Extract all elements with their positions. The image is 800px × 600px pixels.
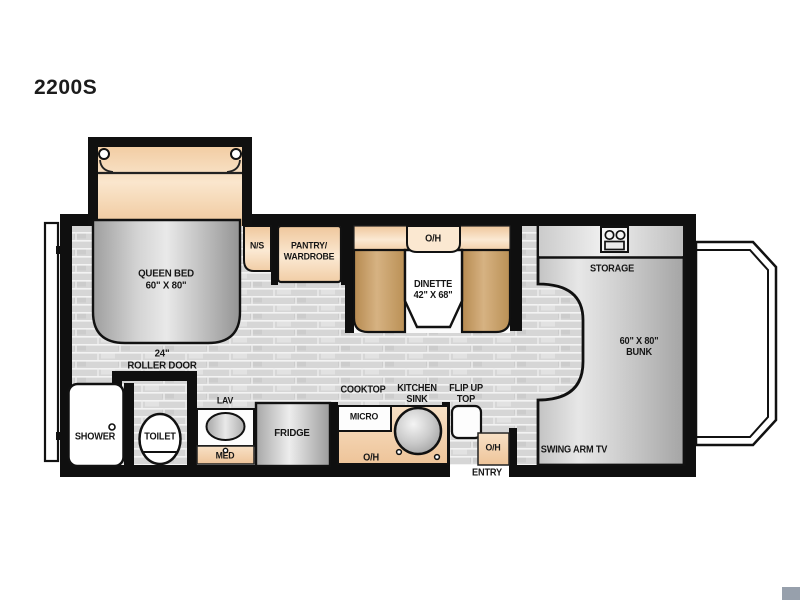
dinette-slideout [354, 226, 510, 333]
cab-front [696, 242, 776, 445]
floorplan-drawing [0, 0, 800, 600]
shower-door-handle [109, 424, 115, 430]
kitchen-sink [395, 408, 441, 454]
dinette-table [405, 250, 462, 327]
bed-slideout [88, 137, 252, 226]
dinette-bench-right [462, 250, 510, 332]
toilet [140, 414, 181, 464]
corner-artifact [782, 587, 800, 600]
floorplan-page: 2200S QUEEN BED 60" X 80" 24" ROLLER DOO… [0, 0, 800, 600]
dinette-overhead-cabinet [407, 226, 460, 252]
queen-bed [93, 220, 240, 343]
microwave [338, 406, 391, 431]
mattress [98, 147, 242, 226]
pantry-wardrobe [278, 226, 341, 282]
nightstand [244, 226, 271, 271]
fridge [256, 403, 330, 466]
entry-overhead-cabinet [478, 433, 509, 465]
flip-up-top [452, 406, 481, 438]
lav-sink [207, 413, 245, 440]
model-title: 2200S [34, 76, 97, 100]
storage-appliance-icon [601, 227, 628, 252]
shower [69, 384, 124, 466]
dinette-bench-left [354, 250, 405, 332]
